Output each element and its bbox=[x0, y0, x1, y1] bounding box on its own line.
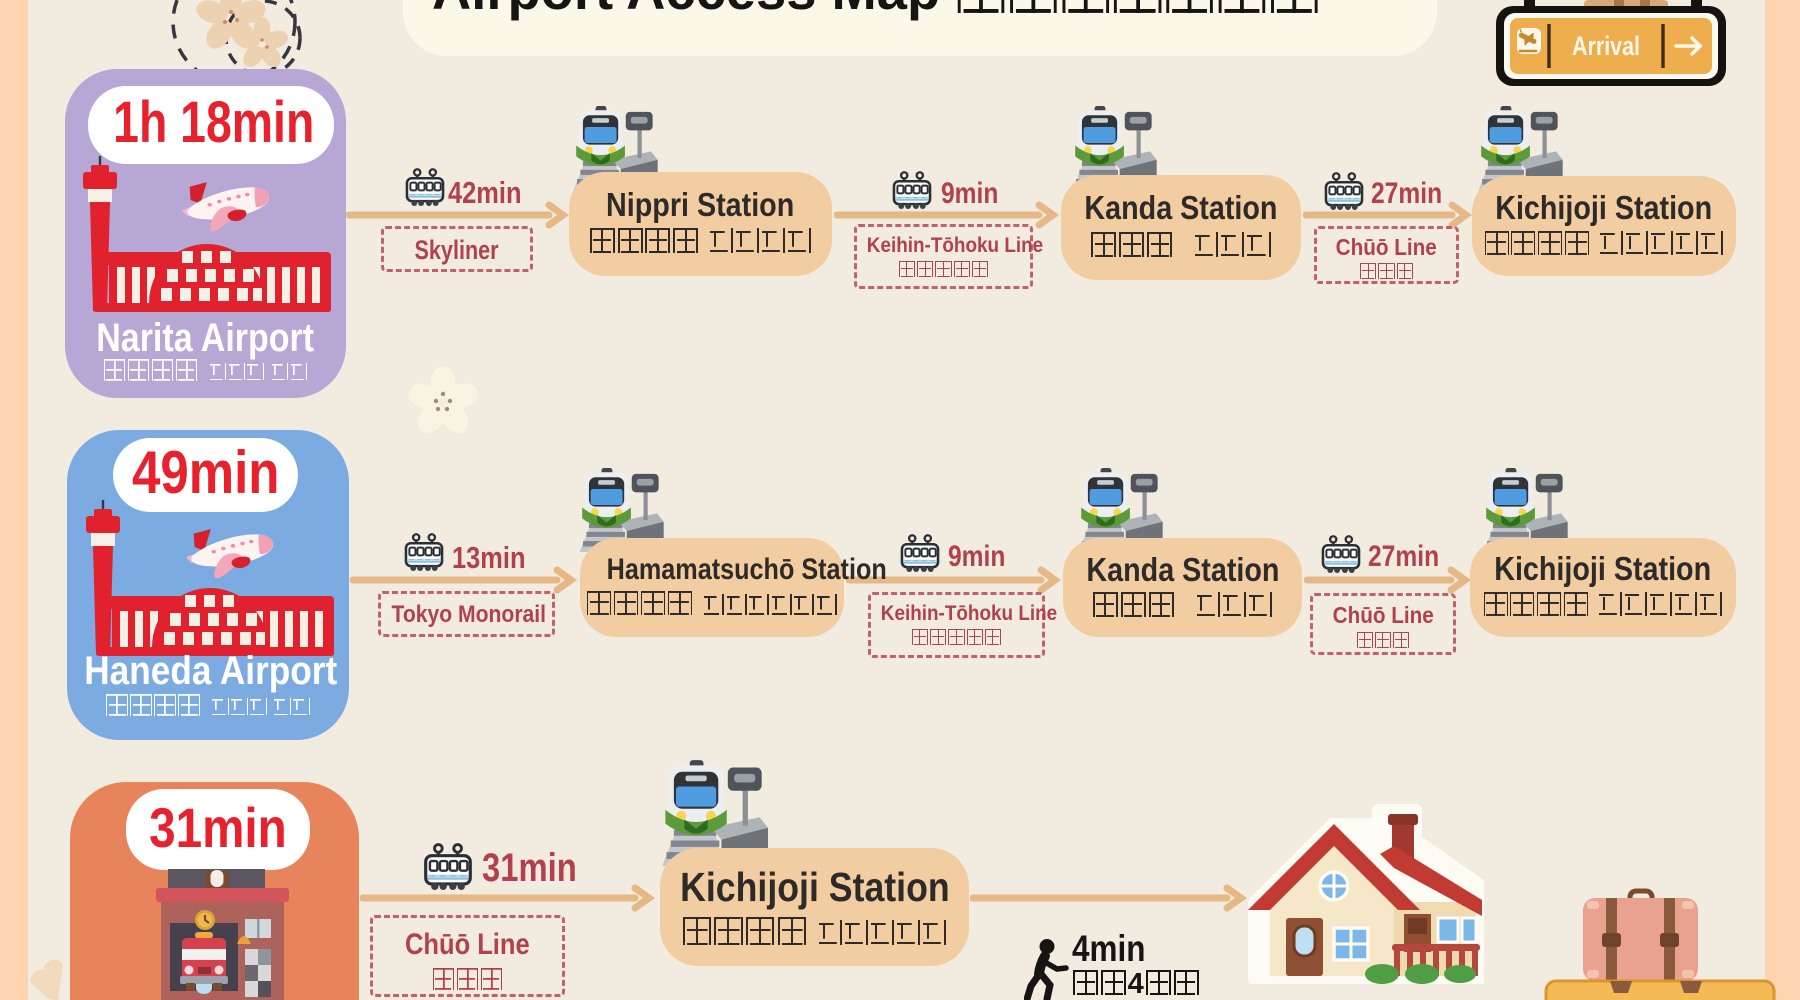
svg-text:Arrival: Arrival bbox=[1572, 31, 1640, 61]
